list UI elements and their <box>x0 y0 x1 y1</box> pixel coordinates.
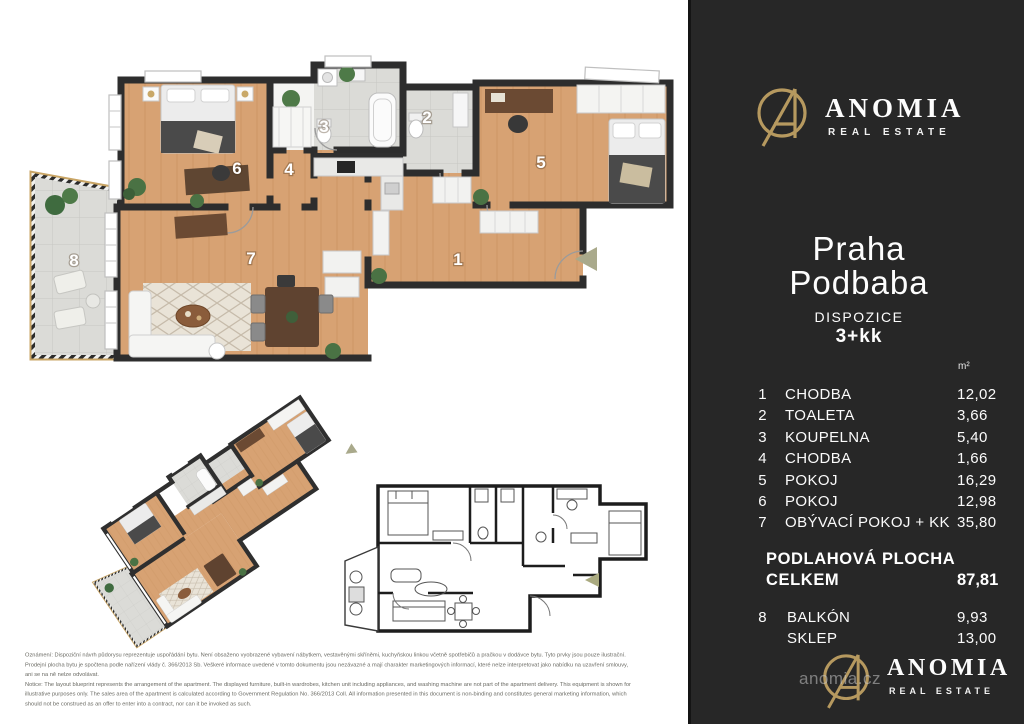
room-label-7: 7 <box>246 249 255 268</box>
room-label-4: 4 <box>284 160 294 179</box>
room-name: SKLEP <box>787 630 837 647</box>
room-area: 35,80 <box>957 514 997 531</box>
chair-icon <box>251 323 265 341</box>
extras-table: 8 BALKÓN 9,93 SKLEP 13,00 <box>691 609 1024 650</box>
room-label-6: 6 <box>232 159 241 178</box>
table-row: 7 OBÝVACÍ POKOJ + KK 35,80 <box>691 514 1024 535</box>
table-row: 8 BALKÓN 9,93 <box>691 609 1024 630</box>
room-area: 9,93 <box>957 609 988 626</box>
room-area: 12,98 <box>957 493 997 510</box>
room-number: 8 <box>749 609 767 626</box>
plant-icon <box>62 188 78 204</box>
brand-name: ANOMIA <box>887 655 1011 682</box>
district-label: Podbaba <box>789 264 928 301</box>
room-area: 12,02 <box>957 386 997 403</box>
plant-icon <box>325 343 341 359</box>
plant-icon <box>339 66 355 82</box>
coffee-table-icon <box>176 305 210 327</box>
location-district: Podbaba <box>691 266 1024 299</box>
info-panel: ANOMIA REAL ESTATE Praha Podbaba DISPOZI… <box>688 0 1024 724</box>
room-area: 3,66 <box>957 407 988 424</box>
brand-tagline: REAL ESTATE <box>889 686 994 696</box>
disclaimer-line: Notice: The layout blueprint represents … <box>25 680 685 690</box>
disclaimer-line: Oznámení: Dispoziční návrh půdorysu repr… <box>25 651 685 661</box>
room-name: CHODBA <box>785 386 852 403</box>
table-row: 1 CHODBA 12,02 <box>691 386 1024 407</box>
website-watermark: anomia.cz <box>799 669 881 689</box>
area-unit-label: m² <box>958 361 970 372</box>
room-name: CHODBA <box>785 450 852 467</box>
flyer-canvas: 6 3 2 4 5 1 7 8 <box>0 0 1024 724</box>
layout-value: 3+kk <box>691 326 1024 348</box>
total-label-line1: PODLAHOVÁ PLOCHA <box>766 550 955 569</box>
room-number: 7 <box>749 514 767 531</box>
table-row: 6 POKOJ 12,98 <box>691 493 1024 514</box>
plant-icon <box>45 195 65 215</box>
sink-icon <box>385 183 399 194</box>
room-number: 5 <box>749 472 767 489</box>
total-area-value: 87,81 <box>957 571 998 590</box>
room-label-3: 3 <box>319 117 328 136</box>
plant-icon <box>190 194 204 208</box>
table-row: 3 KOUPELNA 5,40 <box>691 429 1024 450</box>
room-name: OBÝVACÍ POKOJ + KK <box>785 514 950 531</box>
room-name: POKOJ <box>785 472 838 489</box>
room-area: 1,66 <box>957 450 988 467</box>
room-table: 1 CHODBA 12,02 2 TOALETA 3,66 3 KOUPELNA… <box>691 386 1024 536</box>
disclaimer-line: Prodejní plocha bytu je spočtena podle n… <box>25 661 685 671</box>
chair-icon <box>251 295 265 313</box>
room-label-1: 1 <box>453 250 462 269</box>
table-row: SKLEP 13,00 <box>691 630 1024 651</box>
room-label-5: 5 <box>536 153 545 172</box>
room-label-2: 2 <box>422 108 431 127</box>
layout-label: DISPOZICE <box>691 309 1024 325</box>
brand-name: ANOMIA <box>825 93 965 124</box>
sofa-icon <box>129 335 215 357</box>
wardrobe-icon <box>433 177 471 203</box>
total-label-line2: CELKEM <box>766 571 839 590</box>
kitchen-counter-icon <box>314 158 403 176</box>
room-number: 2 <box>749 407 767 424</box>
chair-icon <box>319 295 333 313</box>
table-row: 5 POKOJ 16,29 <box>691 472 1024 493</box>
blueprint-2d <box>333 473 651 645</box>
room-name: TOALETA <box>785 407 855 424</box>
blueprint-outline <box>378 486 646 631</box>
isometric-floorplan-3d <box>85 368 365 668</box>
room-name: BALKÓN <box>787 609 850 626</box>
table-row: 4 CHODBA 1,66 <box>691 450 1024 471</box>
table-row: 2 TOALETA 3,66 <box>691 407 1024 428</box>
disclaimer-line: illustrative purposes only. The sales ar… <box>25 690 685 700</box>
location-city: Praha <box>691 232 1024 265</box>
stove-icon <box>337 161 355 173</box>
room-name: KOUPELNA <box>785 429 870 446</box>
room-name: POKOJ <box>785 493 838 510</box>
room-number: 6 <box>749 493 767 510</box>
plant-icon <box>282 90 300 108</box>
main-floorplan-3d: 6 3 2 4 5 1 7 8 <box>25 55 685 375</box>
room-area: 5,40 <box>957 429 988 446</box>
disclaimer-line: should not be construed as an offer to e… <box>25 700 685 710</box>
room-area: 13,00 <box>957 630 997 647</box>
sideboard-icon <box>174 213 227 239</box>
anomia-logo-icon <box>755 82 811 150</box>
room-number: 3 <box>749 429 767 446</box>
disclaimer-block: Oznámení: Dispoziční návrh půdorysu repr… <box>25 651 685 709</box>
plant-icon <box>371 268 387 284</box>
room-number: 1 <box>749 386 767 403</box>
city-label: Praha <box>812 230 905 267</box>
disclaimer-line: ani se na ně nelze odvolávat. <box>25 670 685 680</box>
room-number: 4 <box>749 450 767 467</box>
room-area: 16,29 <box>957 472 997 489</box>
chair-icon <box>277 275 295 287</box>
plant-icon <box>473 189 489 205</box>
room-label-8: 8 <box>69 251 78 270</box>
brand-tagline: REAL ESTATE <box>828 127 951 138</box>
toilet-icon <box>409 120 423 138</box>
